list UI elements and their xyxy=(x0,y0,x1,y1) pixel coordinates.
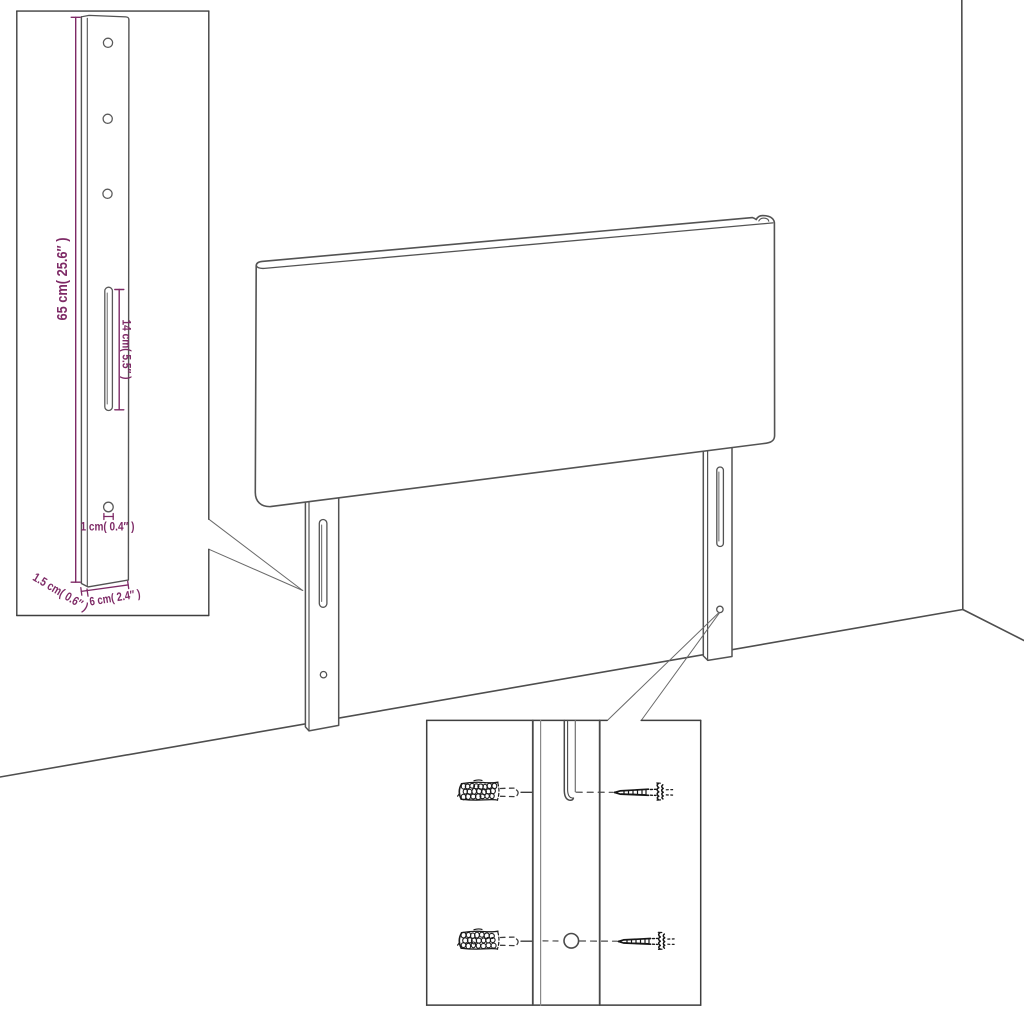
svg-text:14 cm( 5.5″ ): 14 cm( 5.5″ ) xyxy=(120,320,134,380)
svg-text:1 cm( 0.4″ ): 1 cm( 0.4″ ) xyxy=(81,519,135,533)
svg-text:65 cm( 25.6″ ): 65 cm( 25.6″ ) xyxy=(55,237,71,320)
